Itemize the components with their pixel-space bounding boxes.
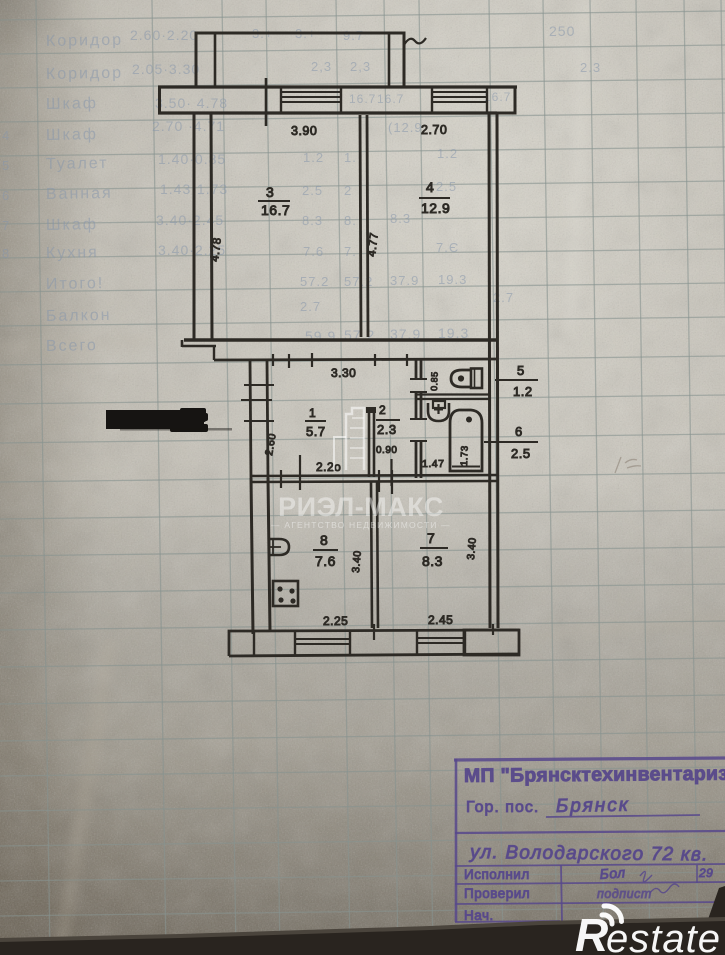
svg-text:0.90: 0.90 — [376, 445, 397, 456]
svg-text:8.3: 8.3 — [422, 553, 443, 569]
svg-text:Шкаф: Шкаф — [46, 216, 98, 234]
svg-text:16.7: 16.7 — [377, 92, 404, 106]
svg-text:1.40·0.85: 1.40·0.85 — [158, 151, 226, 167]
svg-text:2.5: 2.5 — [511, 446, 531, 461]
svg-text:Шкаф: Шкаф — [46, 95, 98, 113]
svg-text:3: 3 — [266, 184, 274, 200]
svg-text:9.7: 9.7 — [343, 28, 364, 43]
svg-text:Нач.: Нач. — [464, 908, 494, 923]
svg-text:(12.9: (12.9 — [388, 120, 423, 135]
svg-text:4: 4 — [2, 128, 10, 143]
svg-text:2.2о: 2.2о — [316, 460, 341, 474]
svg-text:подписm: подписm — [597, 887, 652, 901]
svg-text:2.70: 2.70 — [421, 123, 447, 137]
svg-text:1.73: 1.73 — [459, 445, 471, 466]
svg-text:7.Є: 7.Є — [436, 240, 459, 255]
svg-text:7.6: 7.6 — [315, 553, 336, 569]
svg-text:2.05·3.30: 2.05·3.30 — [132, 61, 200, 77]
svg-text:— АГЕНТСТВО НЕДВИЖИМОСТИ —: — АГЕНТСТВО НЕДВИЖИМОСТИ — — [271, 520, 451, 530]
svg-text:1: 1 — [309, 406, 316, 420]
svg-text:5.7: 5.7 — [306, 424, 326, 439]
svg-text:37.9: 37.9 — [390, 273, 419, 288]
svg-text:2: 2 — [344, 183, 352, 198]
svg-text:Проверил: Проверил — [464, 886, 530, 901]
svg-text:МП "Брянсктехинвентариз: МП "Брянсктехинвентариз — [464, 763, 725, 787]
svg-text:6: 6 — [515, 424, 523, 439]
svg-text:Гор. пос.: Гор. пос. — [466, 799, 539, 816]
svg-text:2.25: 2.25 — [323, 614, 348, 628]
svg-text:2.5: 2.5 — [302, 183, 323, 198]
svg-text:250: 250 — [549, 23, 575, 39]
svg-text:8: 8 — [320, 532, 328, 548]
svg-text:1.: 1. — [344, 150, 357, 165]
svg-text:6: 6 — [2, 188, 10, 203]
svg-text:19.3: 19.3 — [438, 272, 467, 287]
svg-text:57.2: 57.2 — [300, 274, 329, 289]
svg-text:2,3: 2,3 — [350, 59, 371, 74]
svg-text:2.45: 2.45 — [428, 613, 453, 627]
svg-text:РИЭЛ-МАКС: РИЭЛ-МАКС — [278, 492, 444, 522]
svg-text:12.9: 12.9 — [421, 200, 450, 216]
svg-text:Бол: Бол — [599, 864, 626, 882]
svg-text:Ванная: Ванная — [46, 185, 113, 203]
svg-text:2: 2 — [379, 403, 386, 417]
svg-text:3.40: 3.40 — [350, 550, 364, 573]
svg-text:Коридор: Коридор — [46, 32, 123, 50]
svg-text:1.2: 1.2 — [303, 150, 324, 165]
svg-text:7.6: 7.6 — [303, 244, 324, 259]
svg-text:Кухня: Кухня — [46, 244, 99, 262]
svg-text:3.90: 3.90 — [291, 124, 317, 138]
svg-text:Шкаф: Шкаф — [46, 126, 98, 144]
svg-text:Туалет: Туалет — [46, 155, 109, 173]
svg-text:3.40·2.45: 3.40·2.45 — [156, 212, 224, 228]
svg-text:4: 4 — [426, 179, 434, 195]
svg-text:2.60·2.20: 2.60·2.20 — [130, 27, 198, 43]
svg-text:7: 7 — [2, 218, 10, 233]
svg-text:2.3: 2.3 — [377, 422, 397, 437]
svg-text:Исполнил: Исполнил — [464, 867, 530, 882]
svg-text:Брянск: Брянск — [556, 795, 630, 817]
svg-text:7.: 7. — [344, 244, 357, 259]
svg-text:16.7: 16.7 — [349, 92, 376, 106]
svg-text:29: 29 — [698, 866, 713, 880]
svg-text:1.2: 1.2 — [437, 146, 458, 161]
svg-text:16.7: 16.7 — [261, 202, 290, 218]
svg-text:3.30: 3.30 — [331, 366, 356, 380]
svg-text:2.7: 2.7 — [300, 299, 321, 314]
svg-text:2.70 ·4.71: 2.70 ·4.71 — [152, 118, 225, 134]
svg-text:3.40: 3.40 — [465, 537, 479, 560]
svg-text:8.3: 8.3 — [302, 213, 323, 228]
svg-text:Коридор: Коридор — [46, 65, 123, 83]
svg-text:5: 5 — [517, 363, 525, 378]
svg-text:2.3: 2.3 — [580, 60, 601, 75]
svg-text:7: 7 — [427, 530, 435, 546]
svg-text:2.5: 2.5 — [436, 179, 457, 194]
svg-text:Балкон: Балкон — [46, 307, 112, 325]
svg-text:ул. Володарского 72 кв.: ул. Володарского 72 кв. — [468, 842, 709, 866]
svg-text:Итого!: Итого! — [46, 275, 105, 293]
svg-text:2,3: 2,3 — [311, 59, 332, 74]
svg-text:5: 5 — [2, 158, 10, 173]
svg-text:0.85: 0.85 — [429, 371, 440, 391]
svg-text:8.3: 8.3 — [390, 211, 411, 226]
svg-text:8: 8 — [2, 246, 10, 261]
svg-text:Всего: Всего — [46, 337, 98, 355]
svg-text:8.: 8. — [344, 213, 357, 228]
svg-text:1.2: 1.2 — [513, 384, 533, 399]
svg-text:1.47: 1.47 — [422, 458, 444, 470]
svg-text:3.50· 4.78: 3.50· 4.78 — [155, 95, 228, 111]
